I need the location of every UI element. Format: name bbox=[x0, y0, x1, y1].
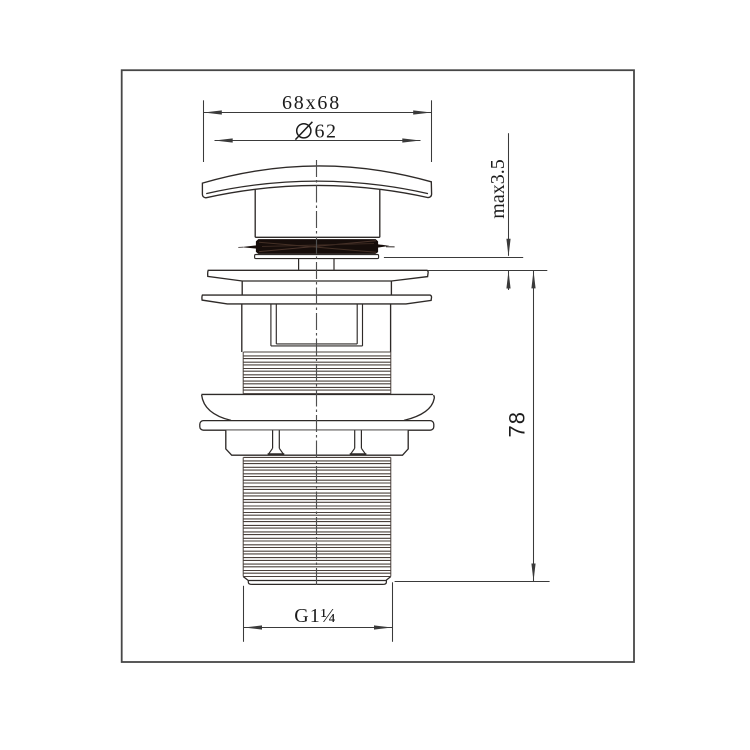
svg-text:max3.5: max3.5 bbox=[487, 159, 509, 218]
svg-text:68x68: 68x68 bbox=[282, 92, 341, 114]
svg-text:78: 78 bbox=[505, 411, 530, 437]
svg-text:62: 62 bbox=[315, 121, 338, 143]
svg-text:G1¼: G1¼ bbox=[294, 605, 336, 627]
